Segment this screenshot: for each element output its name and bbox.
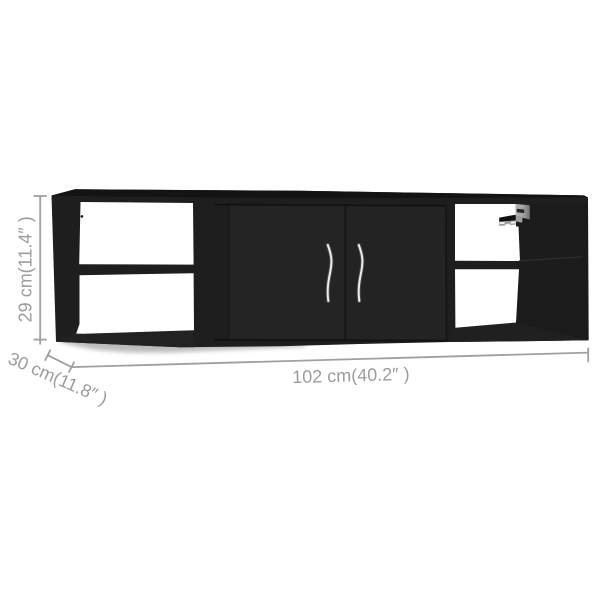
svg-text:29 cm(11.4″ ): 29 cm(11.4″ ) <box>16 216 36 322</box>
svg-text:102 cm(40.2″ ): 102 cm(40.2″ ) <box>292 364 410 387</box>
